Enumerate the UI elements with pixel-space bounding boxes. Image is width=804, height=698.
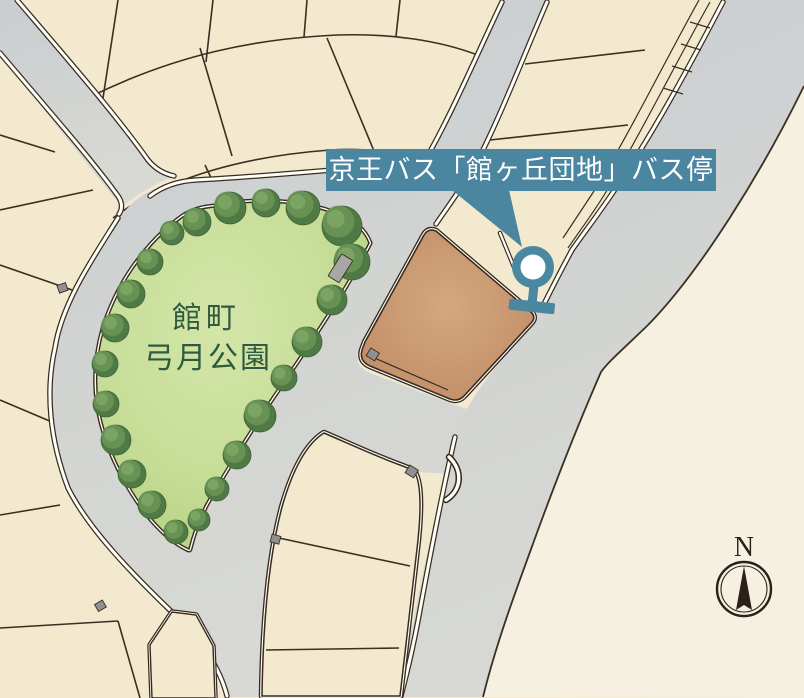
callout-label: 京王バス「館ヶ丘団地」バス停 [329,155,714,185]
park-label-line1: 館町 [172,302,240,335]
residential-area-map: 館町 弓月公園 N 京王バス「館ヶ丘団地」バス停 [0,0,804,698]
map-canvas: 館町 弓月公園 N 京王バス「館ヶ丘団地」バス停 [0,0,804,698]
park-label-line2: 弓月公園 [144,342,272,375]
compass-north-label: N [734,532,754,563]
